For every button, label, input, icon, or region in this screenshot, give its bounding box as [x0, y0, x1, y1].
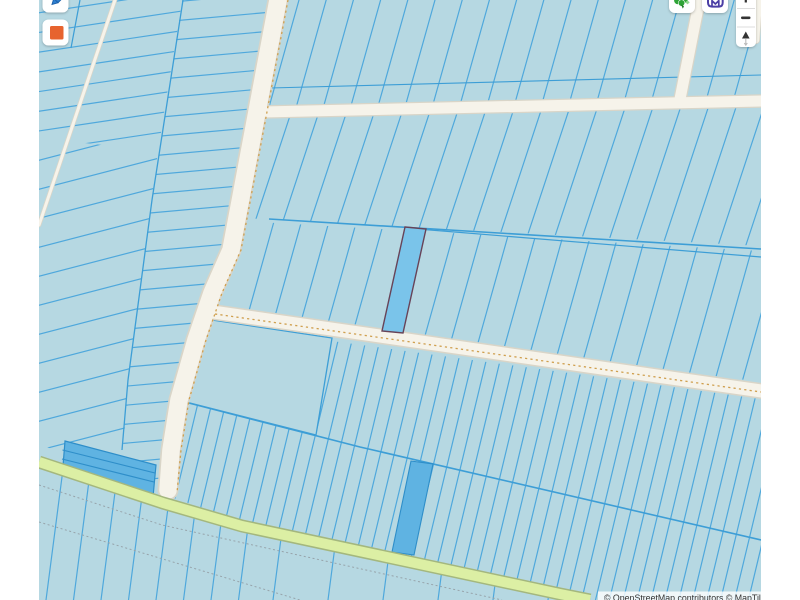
svg-text:© OpenStreetMap contributors ©: © OpenStreetMap contributors © MapTiler — [604, 593, 769, 600]
